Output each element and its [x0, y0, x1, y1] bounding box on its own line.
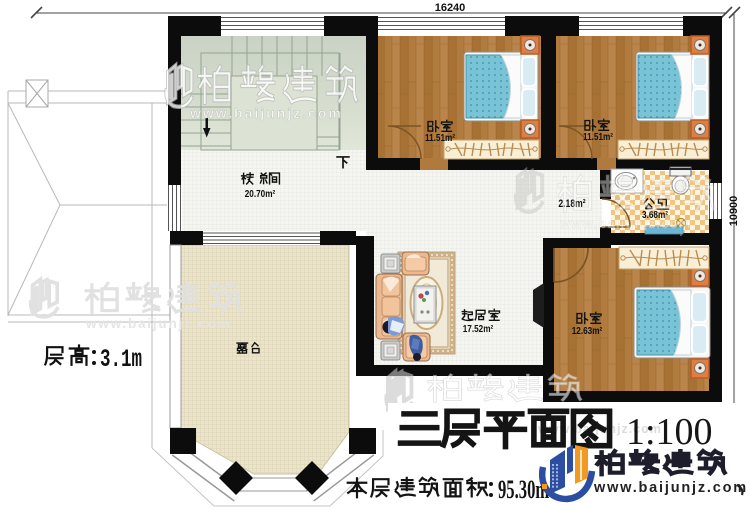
svg-text:www.baijunjz.com: www.baijunjz.com: [593, 480, 748, 496]
svg-text:20.70m²: 20.70m²: [245, 187, 275, 199]
svg-text:www.baijunjz.com: www.baijunjz.com: [85, 316, 231, 331]
svg-text:12.63m²: 12.63m²: [572, 324, 602, 336]
svg-text:11.51m²: 11.51m²: [583, 130, 613, 142]
svg-text:3.1m: 3.1m: [100, 346, 142, 374]
svg-text:www.baijunjz.com: www.baijunjz.com: [189, 105, 343, 121]
svg-text:11.51m²: 11.51m²: [425, 131, 455, 143]
svg-text:10900: 10900: [728, 196, 740, 227]
svg-text:www.baijunjz.com: www.baijunjz.com: [559, 216, 691, 231]
svg-text:1:100: 1:100: [626, 411, 713, 453]
svg-text:16240: 16240: [435, 2, 466, 14]
svg-text:17.52m²: 17.52m²: [463, 322, 493, 334]
